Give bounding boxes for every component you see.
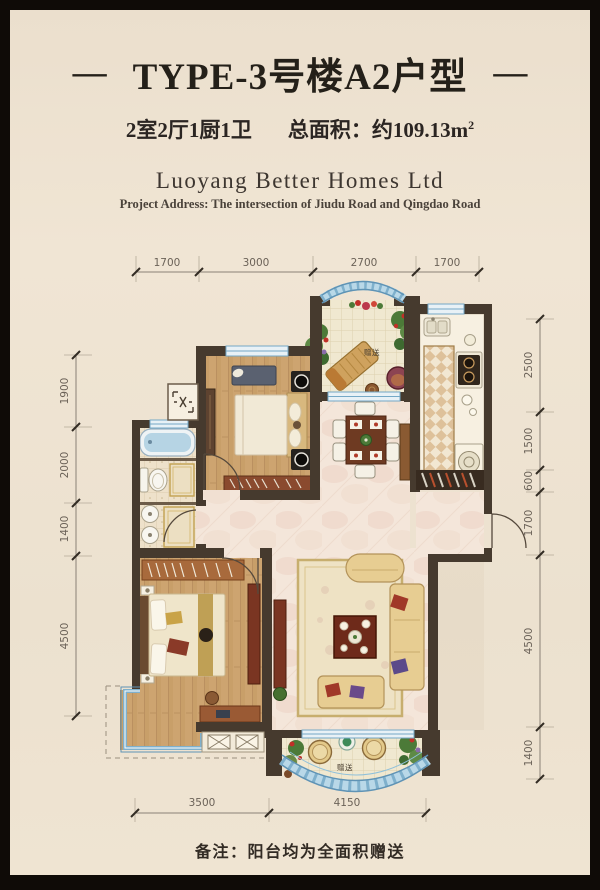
dim-label-right-1: 1500 <box>523 428 535 455</box>
dim-label-left-1: 2000 <box>59 452 71 479</box>
dim-label-right-2: 600 <box>523 471 535 491</box>
dim-label-left-0: 1900 <box>59 378 71 405</box>
balcony-door-window <box>328 392 400 401</box>
dim-label-right-5: 1400 <box>523 740 535 767</box>
top-balcony-railing <box>322 282 404 304</box>
gift-label-bottom: 赠送 <box>337 762 353 772</box>
ac-platform <box>202 732 264 752</box>
shoe-cabinet <box>416 470 484 490</box>
floor-plan: 1700 3000 2700 1700 1900 2000 1400 4500 … <box>10 10 590 875</box>
dim-label-right-0: 2500 <box>523 352 535 379</box>
entry-floor <box>416 492 484 554</box>
poster-canvas: — TYPE-3号楼A2户型 — 2室2厅1厨1卫 总面积：约109.13m2 … <box>10 10 590 875</box>
bedroom2-window <box>226 346 288 356</box>
poster-frame: — TYPE-3号楼A2户型 — 2室2厅1厨1卫 总面积：约109.13m2 … <box>0 0 600 890</box>
entry-door <box>492 514 526 548</box>
pass-through-counter <box>400 424 410 480</box>
dim-label-top-3: 1700 <box>434 257 461 269</box>
hallway-floor <box>196 500 320 548</box>
plant-icon <box>274 688 287 701</box>
dim-label-top-0: 1700 <box>154 257 181 269</box>
dim-label-bottom-0: 3500 <box>189 797 216 809</box>
tub-drain <box>148 440 152 444</box>
elevator-symbol <box>168 384 198 420</box>
gift-label-top: 赠送 <box>364 347 380 357</box>
footer-note: 备注：阳台均为全面积赠送 <box>10 838 590 862</box>
dim-label-left-2: 1400 <box>59 516 71 543</box>
dim-label-top-2: 2700 <box>351 257 378 269</box>
kitchen-window <box>428 304 464 314</box>
dim-label-right-4: 4500 <box>523 628 535 655</box>
bathroom-window <box>150 420 188 428</box>
exterior-shadow <box>438 562 484 730</box>
dim-label-left-3: 4500 <box>59 623 71 650</box>
dim-label-top-1: 3000 <box>243 257 270 269</box>
living-window <box>302 730 414 738</box>
master-balcony-floor <box>120 690 204 750</box>
dim-label-bottom-1: 4150 <box>334 797 361 809</box>
dim-label-right-3: 1700 <box>523 510 535 537</box>
